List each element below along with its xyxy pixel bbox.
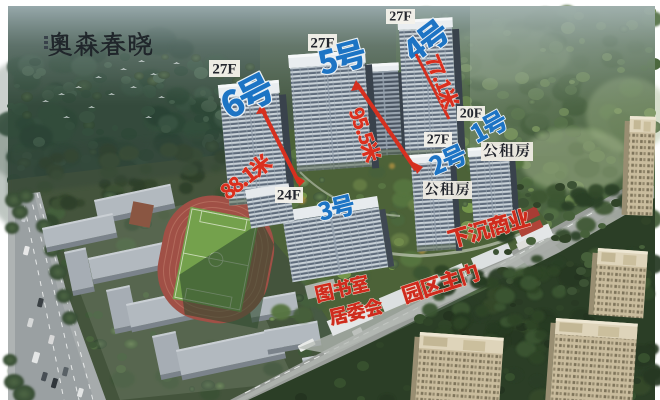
- svg-text:27F: 27F: [212, 62, 236, 78]
- svg-text:27F: 27F: [389, 10, 412, 25]
- svg-text:20F: 20F: [460, 107, 483, 122]
- svg-text:27F: 27F: [427, 133, 450, 148]
- svg-text:24F: 24F: [277, 188, 301, 204]
